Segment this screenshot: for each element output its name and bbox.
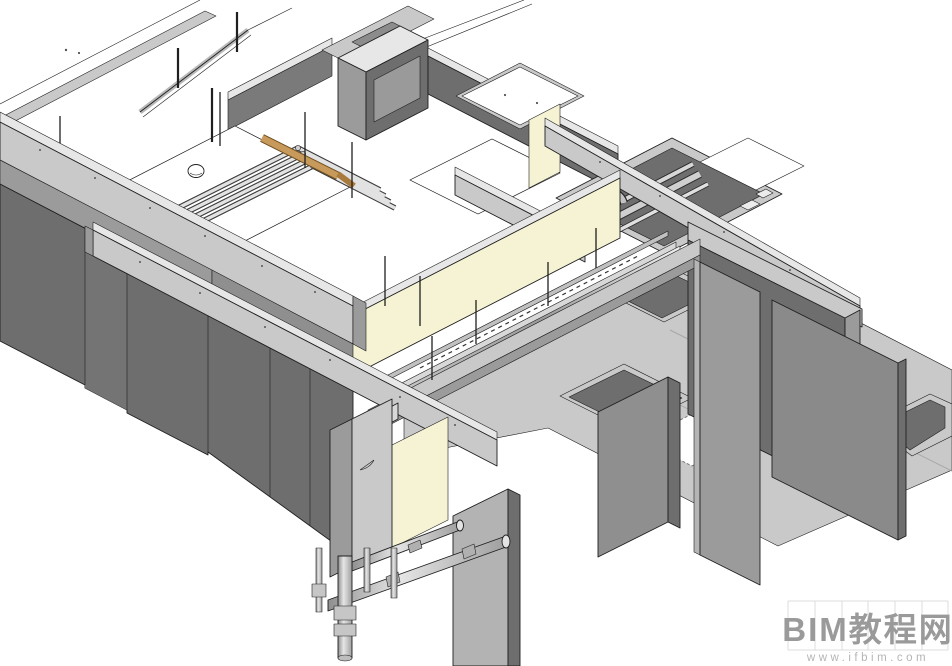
pipe-coupling — [334, 606, 356, 620]
panel-f-edge — [508, 489, 520, 666]
rooftop-equipment-box — [322, 6, 434, 140]
riser-pipe — [391, 548, 397, 598]
pipe-coupling — [334, 624, 356, 636]
riser-pipe — [364, 548, 370, 592]
panel-c-edge — [668, 377, 680, 528]
watermark-title: BIM教程网 — [782, 611, 952, 648]
panel-front — [352, 399, 392, 569]
panel-f — [453, 489, 508, 666]
box-left-face — [338, 58, 366, 140]
watermark-url: www.ifbim.com — [806, 652, 929, 664]
watermark: BIM教程网 www.ifbim.com — [782, 601, 952, 664]
panel-edge-strip — [330, 419, 352, 577]
riser-pipe — [312, 548, 326, 612]
model-render: BIM教程网 www.ifbim.com — [0, 0, 952, 666]
panel-d — [700, 262, 760, 585]
bim-3d-viewport[interactable]: BIM教程网 www.ifbim.com — [0, 0, 952, 666]
pipe-coupling — [312, 584, 326, 597]
panel-e-edge — [898, 359, 906, 540]
floor-dome-fixture — [188, 165, 204, 178]
